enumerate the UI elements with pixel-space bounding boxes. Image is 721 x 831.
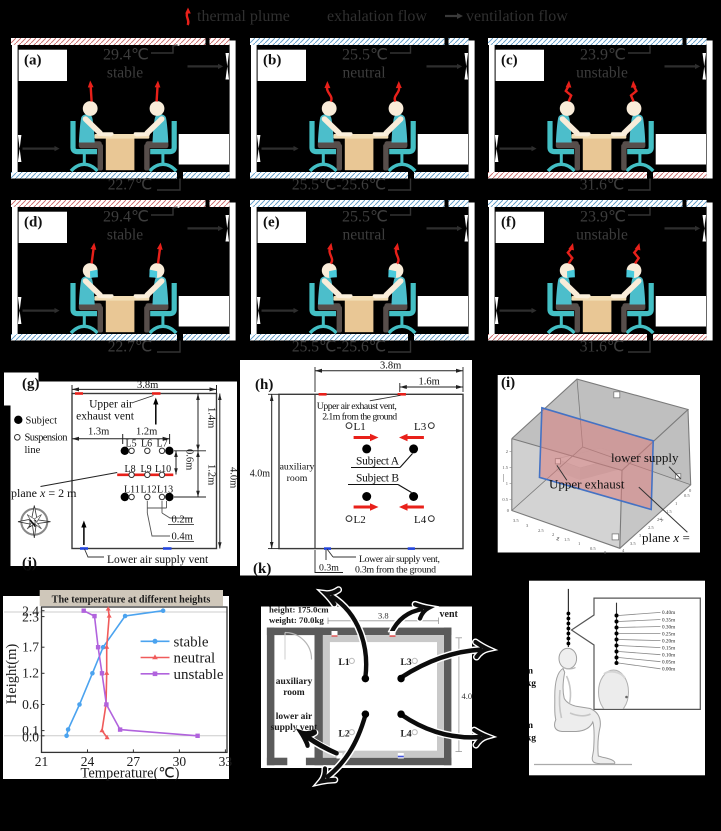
svg-text:L3: L3 [401,658,412,668]
svg-text:The temperature at different h: The temperature at different heights [52,594,211,605]
svg-text:weight: 70.0kg: weight: 70.0kg [269,615,324,625]
svg-text:0.6: 0.6 [22,697,39,712]
svg-text:1.3m: 1.3m [88,427,109,438]
svg-text:exhaust vent: exhaust vent [76,411,135,423]
svg-text:0.35m: 0.35m [662,617,675,623]
svg-text:0.0: 0.0 [22,729,39,744]
svg-text:(f): (f) [501,215,516,231]
svg-text:ventilation flow: ventilation flow [466,8,568,25]
svg-text:auxiliary: auxiliary [280,462,315,473]
svg-text:1.6m: 1.6m [419,377,440,388]
svg-text:vent: vent [440,609,459,620]
svg-text:L2: L2 [354,514,366,526]
svg-text:L12: L12 [141,484,157,495]
svg-text:0.15m: 0.15m [662,645,675,651]
svg-text:3.5: 3.5 [513,518,519,523]
svg-text:29.4℃: 29.4℃ [103,209,149,226]
svg-text:plane x = 2 m: plane x = 2 m [11,486,77,500]
svg-text:lower air: lower air [276,712,313,722]
svg-text:3.8m: 3.8m [380,361,401,372]
svg-text:(a): (a) [24,53,42,69]
svg-text:N: N [29,518,37,530]
svg-text:0.3m: 0.3m [319,563,339,574]
svg-text:room: room [283,688,305,698]
svg-text:1.7: 1.7 [22,640,39,655]
svg-text:25.5℃: 25.5℃ [342,47,388,64]
svg-text:0.3m from the ground: 0.3m from the ground [355,565,436,576]
svg-text:25.5℃-25.6℃: 25.5℃-25.6℃ [292,339,386,356]
svg-text:1: 1 [578,541,580,546]
svg-text:25.5℃: 25.5℃ [342,209,388,226]
svg-text:31.6℃: 31.6℃ [580,177,625,194]
svg-text:1.2m: 1.2m [136,427,157,438]
svg-text:L1: L1 [339,658,350,668]
svg-text:0.25m: 0.25m [662,631,675,637]
svg-text:neutral: neutral [342,65,385,82]
svg-text:0.6m: 0.6m [184,449,195,470]
svg-text:L4: L4 [401,730,412,740]
svg-text:unstable: unstable [576,65,628,82]
svg-text:L1: L1 [354,421,366,433]
svg-text:23.9℃: 23.9℃ [580,209,626,226]
svg-text:(c): (c) [501,53,518,69]
svg-text:2.3: 2.3 [22,610,39,625]
svg-text:Temperature(℃): Temperature(℃) [81,766,180,782]
svg-text:room: room [287,473,308,484]
svg-text:(g): (g) [22,376,40,392]
svg-text:1.5: 1.5 [666,509,672,514]
svg-text:Subject: Subject [26,416,58,427]
svg-text:lower supply: lower supply [611,450,679,465]
svg-text:0.05m: 0.05m [662,660,675,666]
svg-text:Subject A: Subject A [356,456,400,468]
svg-text:31.6℃: 31.6℃ [580,339,625,356]
svg-text:0.20m: 0.20m [662,638,675,644]
svg-text:2: 2 [506,449,508,454]
svg-text:2.5: 2.5 [648,525,654,530]
svg-text:1.2m: 1.2m [206,464,217,485]
svg-text:L6: L6 [141,438,152,449]
svg-text:1: 1 [675,501,677,506]
svg-text:neutral: neutral [342,227,385,244]
svg-text:3.5: 3.5 [630,541,636,546]
svg-text:L3: L3 [414,421,427,433]
svg-text:(j): (j) [22,556,37,572]
svg-text:exhalation flow: exhalation flow [327,8,427,25]
svg-text:4.0m: 4.0m [228,467,239,488]
svg-text:0.00m: 0.00m [662,667,675,673]
svg-text:22.7℃: 22.7℃ [108,339,153,356]
svg-text:33: 33 [219,754,233,769]
svg-text:Suspension: Suspension [25,433,69,444]
svg-text:23.9℃: 23.9℃ [580,47,626,64]
svg-text:stable: stable [107,227,143,244]
svg-text:21: 21 [35,754,49,769]
svg-text:L2: L2 [339,730,350,740]
svg-text:1.5: 1.5 [502,465,508,470]
svg-text:(b): (b) [263,53,281,69]
svg-text:unstable: unstable [576,227,628,244]
svg-text:Subject B: Subject B [356,473,399,485]
svg-text:(h): (h) [255,377,273,393]
svg-text:1: 1 [506,481,508,486]
svg-text:(k): (k) [253,561,271,577]
svg-text:height: 175.0cm: height: 175.0cm [269,605,329,615]
svg-text:0.10m: 0.10m [662,653,675,659]
svg-text:neutral: neutral [174,651,216,667]
svg-text:line: line [25,445,41,456]
svg-text:Upper air exhaust vent,: Upper air exhaust vent, [317,401,397,412]
svg-text:0.30m: 0.30m [662,624,675,630]
svg-text:Height(m): Height(m) [4,644,20,705]
svg-text:(i): (i) [501,375,515,391]
svg-text:0.2m: 0.2m [172,515,193,526]
svg-text:2: 2 [552,532,554,537]
svg-text:unstable: unstable [174,667,224,683]
svg-text:Lower air supply vent,: Lower air supply vent, [359,554,440,565]
svg-text:0.5: 0.5 [502,497,508,502]
svg-text:stable: stable [107,65,143,82]
svg-text:4.0m: 4.0m [250,469,271,480]
svg-text:25.5℃-25.6℃: 25.5℃-25.6℃ [292,177,386,194]
svg-text:L4: L4 [414,514,427,526]
svg-text:3.8: 3.8 [378,610,389,620]
svg-text:1.5: 1.5 [564,537,570,542]
svg-text:1.2: 1.2 [22,666,39,681]
svg-text:(e): (e) [263,215,280,231]
svg-text:4.0: 4.0 [462,691,473,701]
svg-text:1.4m: 1.4m [206,407,217,428]
svg-text:0.4m: 0.4m [172,532,193,543]
svg-text:thermal plume: thermal plume [197,8,290,25]
svg-text:(d): (d) [24,215,42,231]
svg-text:3.8m: 3.8m [137,380,158,391]
svg-text:0.40m: 0.40m [662,610,675,616]
svg-text:Lower air supply vent: Lower air supply vent [107,554,209,566]
svg-text:2.5: 2.5 [538,528,544,533]
svg-text:plane x =: plane x = [642,530,690,545]
svg-text:0.5: 0.5 [590,546,596,551]
svg-text:22.7℃: 22.7℃ [108,177,153,194]
svg-text:stable: stable [174,634,209,650]
svg-text:Upper air: Upper air [89,399,133,411]
svg-text:29.4℃: 29.4℃ [103,47,149,64]
svg-text:auxiliary: auxiliary [276,677,313,687]
svg-text:Upper exhaust: Upper exhaust [549,477,625,492]
svg-text:0.5: 0.5 [684,493,690,498]
